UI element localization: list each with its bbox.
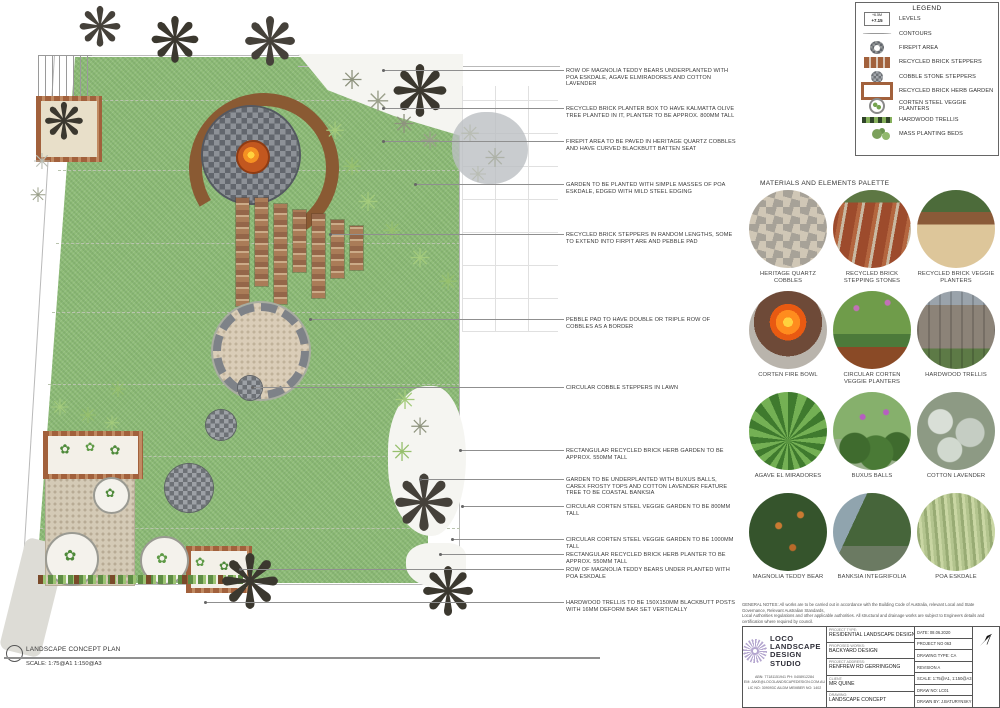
palette-label: CIRCULAR CORTEN VEGGIE PLANTERS (832, 372, 912, 386)
palette-label: HERITAGE QUARTZ COBBLES (748, 271, 828, 285)
contour-icon (860, 33, 894, 34)
palette-item: RECYCLED BRICK VEGGIE PLANTERS (914, 190, 998, 291)
annotation-note: HARDWOOD TRELLIS TO BE 150X150MM BLACKBU… (566, 600, 736, 613)
leader-line (415, 184, 564, 185)
annotation-text: PEBBLE PAD TO HAVE DOUBLE OR TRIPLE ROW … (566, 317, 710, 330)
annotation-text: FIREPIT AREA TO BE PAVED IN HERITAGE QUA… (566, 139, 736, 152)
palette-label: RECYCLED BRICK STEPPING STONES (832, 271, 912, 285)
annotation-text: HARDWOOD TRELLIS TO BE 150X150MM BLACKBU… (566, 600, 735, 613)
brick-stepper (293, 210, 306, 272)
grass-symbol: ✳ (357, 189, 379, 215)
recycled-brick-veggie-planters-photo (917, 190, 995, 268)
legend-item-herb-garden: RECYCLED BRICK HERB GARDEN (856, 84, 998, 98)
annotation-text: GARDEN TO BE PLANTED WITH SIMPLE MASSES … (566, 182, 725, 195)
annotation-text: RECYCLED BRICK STEPPERS IN RANDOM LENGTH… (566, 232, 732, 245)
annotation-note: RECYCLED BRICK PLANTER BOX TO HAVE KALMA… (566, 106, 736, 119)
grass-symbol: ✳ (30, 186, 47, 206)
annotation-note: RECYCLED BRICK STEPPERS IN RANDOM LENGTH… (566, 232, 736, 245)
brick-stepper (274, 204, 287, 304)
annotation-text: RECTANGULAR RECYCLED BRICK HERB PLANTER … (566, 552, 726, 565)
legend-item-levels: +6.5M+7.15 LEVELS (856, 12, 998, 26)
herb-symbol: ✿ (195, 556, 205, 568)
company-licence: LIC NO: 309093C AILDM MEMBER NO: 1402 (744, 686, 825, 691)
leader-line (383, 141, 564, 142)
drawing-number-bubble (6, 645, 23, 662)
palette-item: BUXUS BALLS (830, 392, 914, 493)
palette-label: RECYCLED BRICK VEGGIE PLANTERS (916, 271, 996, 285)
field-project-address: PROJECT ADDRESS:RENFREW RD GERRINGONG (827, 659, 914, 675)
grass-symbol: ✳ (409, 245, 431, 271)
palette-label: MAGNOLIA TEDDY BEAR (753, 574, 824, 581)
annotation-text: ROW OF MAGNOLIA TEDDY BEARS UNDERPLANTED… (566, 68, 728, 87)
brick-herb-garden (43, 431, 143, 479)
company-name: LOCO LANDSCAPE DESIGN STUDIO (770, 635, 826, 668)
herb-symbol: ✿ (156, 551, 168, 565)
legend-label: COBBLE STONE STEPPERS (899, 74, 976, 80)
palette-item: AGAVE EL MIRADORES (746, 392, 830, 493)
herb-symbol: ✿ (105, 487, 115, 499)
legend-item-trellis: HARDWOOD TRELLIS (856, 113, 998, 127)
annotation-text: RECTANGULAR RECYCLED BRICK HERB GARDEN T… (566, 448, 724, 461)
levels-icon: +6.5M+7.15 (860, 12, 894, 26)
shrub-symbol: ✳ (469, 164, 487, 186)
tree-symbol: ❋ (242, 9, 297, 75)
cobble-stepper (238, 376, 262, 400)
company-name-line: LOCO LANDSCAPE (770, 635, 826, 651)
shrub-symbol: ✳ (484, 145, 506, 171)
field-project-type: PROJECT TYPE:RESIDENTIAL LANDSCAPE DESIG… (827, 627, 914, 643)
palette-item: MAGNOLIA TEDDY BEAR (746, 493, 830, 594)
palette-item: CORTEN FIRE BOWL (746, 291, 830, 392)
cotton-lavender-photo (917, 392, 995, 470)
palette-label: BUXUS BALLS (852, 473, 893, 480)
annotation-text: ROW OF MAGNOLIA TEDDY BEARS UNDER PLANTE… (566, 567, 730, 580)
legend-item-corten-planters: CORTEN STEEL VEGGIE PLANTERS (856, 98, 998, 112)
firepit-icon (860, 41, 894, 54)
materials-palette: HERITAGE QUARTZ COBBLES RECYCLED BRICK S… (746, 190, 998, 594)
hardwood-trellis (38, 575, 243, 584)
company-brand: LOCO LANDSCAPE DESIGN STUDIO (743, 635, 826, 668)
recycled-brick-stepping-stones-photo (833, 190, 911, 268)
brick-stepper (350, 226, 363, 270)
palette-label: CORTEN FIRE BOWL (758, 372, 817, 379)
palette-label: HARDWOOD TRELLIS (925, 372, 987, 379)
leader-line (310, 319, 564, 320)
field-value: MR QUINE (829, 681, 912, 687)
fire-bowl-flame (243, 147, 259, 163)
hardwood-trellis-photo (917, 291, 995, 369)
herb-symbol: ✿ (85, 441, 95, 453)
grass-symbol: ✳ (410, 416, 430, 440)
corten-fire-bowl-photo (749, 291, 827, 369)
field-value: LANDSCAPE CONCEPT (829, 697, 912, 703)
palette-label: COTTON LAVENDER (927, 473, 985, 480)
grass-symbol: ✳ (33, 151, 51, 173)
herb-symbol: ✿ (219, 560, 229, 572)
palette-title: MATERIALS AND ELEMENTS PALETTE (760, 180, 889, 187)
legend-label: FIREPIT AREA (899, 45, 938, 51)
magnolia-teddy-bear-photo (749, 493, 827, 571)
field-proposed-works: PROPOSED WORKS:BACKYARD DESIGN (827, 643, 914, 659)
grass-symbol: ✳ (342, 156, 362, 180)
circular-corten-veggie-planters-photo (833, 291, 911, 369)
field-value: BACKYARD DESIGN (829, 648, 912, 654)
brick-stepper (236, 198, 249, 306)
palette-item: RECYCLED BRICK STEPPING STONES (830, 190, 914, 291)
shrub-symbol: ✳ (393, 111, 415, 137)
annotation-note: ROW OF MAGNOLIA TEDDY BEARS UNDERPLANTED… (566, 68, 736, 88)
north-arrow-icon (977, 631, 995, 649)
legend-label: CONTOURS (899, 31, 932, 37)
heritage-quartz-cobbles-photo (749, 190, 827, 268)
meta-revision: REVISION A (915, 662, 972, 674)
annotation-text: CIRCULAR CORTEN STEEL VEGGIE GARDEN TO B… (566, 504, 730, 517)
annotation-note: RECTANGULAR RECYCLED BRICK HERB PLANTER … (566, 552, 736, 565)
legend-item-contours: CONTOURS (856, 26, 998, 40)
palette-item: HERITAGE QUARTZ COBBLES (746, 190, 830, 291)
mass-planting-icon (860, 129, 894, 139)
palette-item: COTTON LAVENDER (914, 392, 998, 493)
level-value: +7.15 (871, 18, 882, 23)
shrub-symbol: ✳ (366, 88, 389, 116)
company-contact: ABN: 77181151941 PH: 0408912284 EM: JAKE… (744, 675, 825, 691)
leader-line (205, 602, 564, 603)
leader-line (252, 387, 564, 388)
poa-eskdale-photo (917, 493, 995, 571)
grass-symbol: ✳ (79, 405, 97, 427)
company-logo-icon (743, 639, 767, 663)
grass-symbol: ✳ (391, 439, 413, 465)
legend-title: LEGEND (856, 3, 998, 12)
meta-drawing-type: DRAWING TYPE: CA (915, 650, 972, 662)
annotation-text: CIRCULAR CORTEN STEEL VEGGIE GARDEN TO B… (566, 537, 733, 550)
level-value-top: +6.5M (872, 13, 882, 17)
drawing-title: LANDSCAPE CONCEPT PLAN (26, 646, 121, 653)
tree-symbol: ❋ (149, 11, 201, 73)
herb-symbol: ✿ (110, 444, 121, 457)
buxus-balls-photo (833, 392, 911, 470)
cobble-stepper (206, 410, 236, 440)
company-panel: LOCO LANDSCAPE DESIGN STUDIO ABN: 771811… (743, 627, 827, 707)
leader-line (420, 479, 564, 480)
leader-line (383, 108, 564, 109)
grass-symbol: ✳ (394, 387, 416, 413)
legend-label: MASS PLANTING BEDS (899, 131, 963, 137)
trellis-icon (860, 117, 894, 123)
legend-label: HARDWOOD TRELLIS (899, 117, 959, 123)
legend-label: LEVELS (899, 16, 921, 22)
legend-label: CORTEN STEEL VEGGIE PLANTERS (899, 100, 998, 112)
meta-draw-no: DRAW NO: LC01 (915, 685, 972, 697)
tree-symbol: ❋ (77, 1, 122, 55)
north-arrow-cell (973, 627, 999, 707)
annotation-note: CIRCULAR COBBLE STEPPERS IN LAWN (566, 385, 736, 392)
grass-symbol: ✳ (104, 414, 121, 434)
banksia-integrifolia-photo (833, 493, 911, 571)
field-value: RESIDENTIAL LANDSCAPE DESIGN (829, 632, 912, 638)
general-notes-line: Local Authorities regulations and other … (742, 613, 998, 624)
project-fields: PROJECT TYPE:RESIDENTIAL LANDSCAPE DESIG… (827, 627, 915, 707)
annotation-text: RECYCLED BRICK PLANTER BOX TO HAVE KALMA… (566, 106, 734, 119)
brick-stepper (255, 198, 268, 286)
grass-symbol: ✳ (51, 397, 69, 419)
palette-label: POA ESKDALE (935, 574, 976, 581)
brick-steppers-icon (860, 57, 894, 68)
annotation-note: CIRCULAR CORTEN STEEL VEGGIE GARDEN TO B… (566, 504, 736, 517)
palette-item: CIRCULAR CORTEN VEGGIE PLANTERS (830, 291, 914, 392)
palette-label: AGAVE EL MIRADORES (755, 473, 822, 480)
shrub-symbol: ✳ (341, 67, 363, 93)
annotation-note: PEBBLE PAD TO HAVE DOUBLE OR TRIPLE ROW … (566, 317, 736, 330)
fence-hatch (38, 55, 92, 97)
title-block: LOCO LANDSCAPE DESIGN STUDIO ABN: 771811… (742, 626, 1000, 708)
leader-line (460, 450, 564, 451)
shrub-symbol: ✳ (420, 130, 440, 154)
leader-line (330, 234, 564, 235)
field-drawing: DRAWING:LANDSCAPE CONCEPT (827, 692, 914, 707)
annotation-note: RECTANGULAR RECYCLED BRICK HERB GARDEN T… (566, 448, 736, 461)
grass-symbol: ✳ (325, 120, 345, 144)
legend-item-firepit: FIREPIT AREA (856, 41, 998, 55)
meta-drawn-by: DRAWN BY: J.BATURYNSKY (915, 696, 972, 707)
company-name-line: DESIGN STUDIO (770, 651, 826, 667)
title-underline (4, 657, 600, 659)
annotation-note: FIREPIT AREA TO BE PAVED IN HERITAGE QUA… (566, 139, 736, 152)
general-notes: GENERAL NOTES: All works are to be carri… (742, 602, 998, 624)
brick-stepper (312, 214, 325, 298)
palette-item: BANKSIA INTEGRIFOLIA (830, 493, 914, 594)
palette-item: POA ESKDALE (914, 493, 998, 594)
meta-project-no: PROJECT NO 063 (915, 639, 972, 651)
grass-symbol: ✳ (438, 271, 458, 295)
legend-label: RECYCLED BRICK HERB GARDEN (899, 88, 993, 94)
leader-line (440, 554, 564, 555)
annotation-note: GARDEN TO BE UNDERPLANTED WITH BUXUS BAL… (566, 477, 736, 497)
legend-label: RECYCLED BRICK STEPPERS (899, 59, 982, 65)
plan-drawing: ❋ ❋ ❋ ❋ ❋ ❋ ❋ ❋ ✳ ✳ ✳ ✳ ✳ ✳ ✳ ✳ ✳ ✳ ✳ ✳ … (0, 0, 565, 650)
leader-line (452, 539, 564, 540)
field-client: CLIENT:MR QUINE (827, 676, 914, 692)
cobble-stepper-icon (860, 71, 894, 83)
leader-line (462, 506, 564, 507)
field-value: RENFREW RD GERRINGONG (829, 664, 912, 670)
drawing-meta: DATE: 08.06.2020 PROJECT NO 063 DRAWING … (915, 627, 973, 707)
legend-item-brick-steppers: RECYCLED BRICK STEPPERS (856, 55, 998, 69)
meta-scale: SCALE: 1:75@A1, 1:150@A3 (915, 673, 972, 685)
palette-label: BANKSIA INTEGRIFOLIA (838, 574, 907, 581)
palette-item: HARDWOOD TRELLIS (914, 291, 998, 392)
grass-symbol: ✳ (382, 220, 402, 244)
annotation-note: GARDEN TO BE PLANTED WITH SIMPLE MASSES … (566, 182, 736, 195)
corten-planter-icon (860, 98, 894, 114)
annotation-note: ROW OF MAGNOLIA TEDDY BEARS UNDER PLANTE… (566, 567, 736, 580)
meta-date: DATE: 08.06.2020 (915, 627, 972, 639)
shrub-symbol: ✳ (460, 123, 480, 147)
annotation-text: CIRCULAR COBBLE STEPPERS IN LAWN (566, 385, 678, 391)
herb-symbol: ✿ (60, 443, 71, 456)
herb-symbol: ✿ (64, 549, 77, 564)
landscape-concept-sheet: ❋ ❋ ❋ ❋ ❋ ❋ ❋ ❋ ✳ ✳ ✳ ✳ ✳ ✳ ✳ ✳ ✳ ✳ ✳ ✳ … (0, 0, 1000, 708)
agave-el-miradores-photo (749, 392, 827, 470)
leader-line (383, 70, 564, 71)
annotation-note: CIRCULAR CORTEN STEEL VEGGIE GARDEN TO B… (566, 537, 736, 550)
company-email: EM: JAKE@LOCOLANDSCAPEDESIGN.COM.AU (744, 680, 825, 685)
tree-symbol: ❋ (43, 97, 85, 147)
cobble-stepper (165, 464, 213, 512)
annotation-text: GARDEN TO BE UNDERPLANTED WITH BUXUS BAL… (566, 477, 727, 496)
tree-symbol: ❋ (219, 546, 281, 620)
grass-symbol: ✳ (109, 379, 127, 401)
drawing-scale: SCALE: 1:75@A1 1:150@A3 (26, 661, 102, 667)
leader-line (240, 569, 564, 570)
general-notes-line: GENERAL NOTES: All works are to be carri… (742, 602, 998, 613)
legend-item-mass-planting: MASS PLANTING BEDS (856, 127, 998, 141)
legend-panel: LEGEND +6.5M+7.15 LEVELS CONTOURS FIREPI… (855, 2, 999, 156)
brick-stepper (331, 220, 344, 278)
